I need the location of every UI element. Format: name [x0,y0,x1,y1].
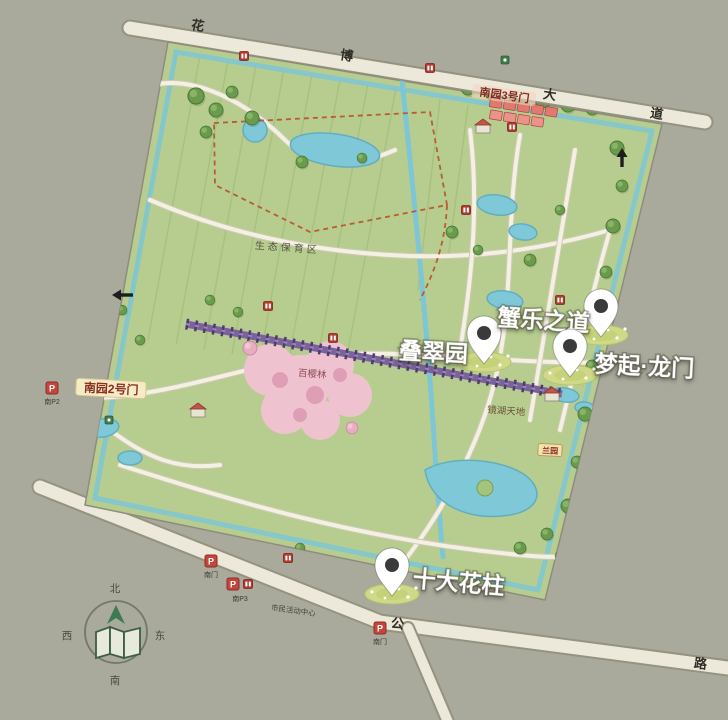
parking-label: 南P3 [232,594,248,603]
park-map: 花 博 大 道 公 路 P 南P2 P 南门 P [0,0,728,720]
road-char: 花 [190,17,205,34]
parking-letter: P [49,384,55,394]
road-char: 大 [542,86,557,103]
lanyuan-sign: 兰园 [538,443,563,456]
parking-south-gate-b: P 南门 [373,622,387,646]
lanyuan-label: 兰园 [542,445,559,456]
parking-label: 南门 [204,570,218,579]
road-char: 道 [649,105,664,122]
map-canvas: 花 博 大 道 公 路 P 南P2 P 南门 P [0,0,728,720]
cherry-forest-label: 百樱林 [298,367,328,381]
parking-letter: P [377,624,383,634]
poi-label-diecuiyuan[interactable]: 叠翠园 [398,337,468,367]
compass-south: 南 [110,674,121,687]
parking-label: 南P2 [44,397,60,406]
poi-label-mengqi-longmen[interactable]: 梦起·龙门 [594,350,695,381]
gate2-label: 南园2号门 [84,380,139,398]
parking-south-gate-a: P 南门 [204,555,218,579]
road-char: 公 [390,615,405,632]
parking-p2: P 南P2 [44,382,60,406]
compass-north: 北 [110,583,121,595]
compass-west: 西 [62,630,73,642]
parking-label: 南门 [373,637,387,646]
gate2-sign: 南园2号门 [76,378,147,399]
service-badge [501,56,509,64]
service-badge [105,416,113,424]
parking-letter: P [208,557,214,567]
road-char: 博 [339,47,354,64]
compass-east: 东 [155,629,166,642]
parking-letter: P [230,580,236,590]
folded-map-icon [96,627,140,658]
